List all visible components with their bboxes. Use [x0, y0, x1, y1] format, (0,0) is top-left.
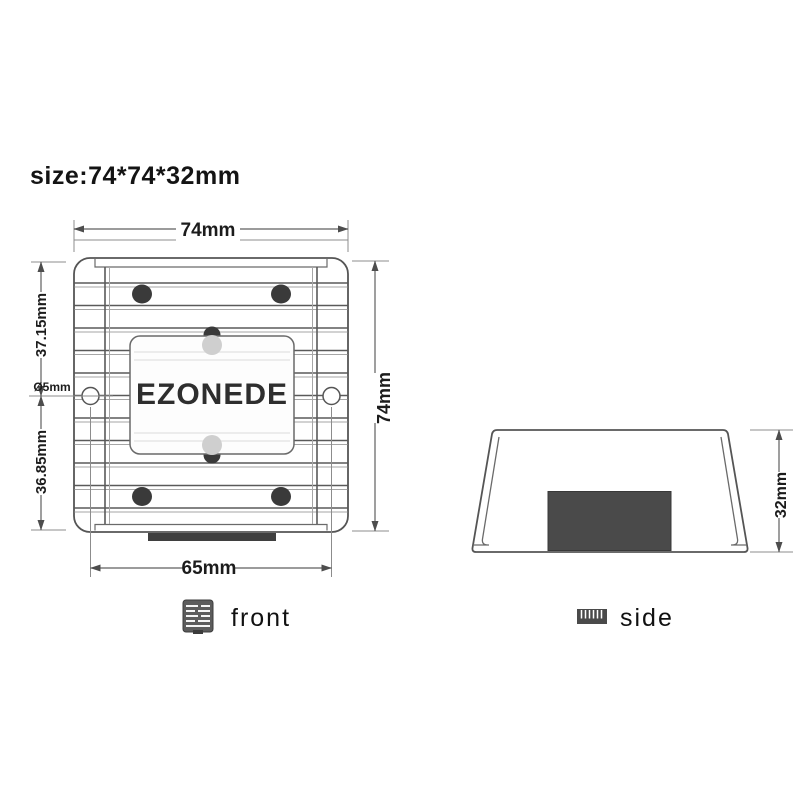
dimension-width-top: 74mm	[74, 220, 348, 252]
mounting-hole-right	[323, 388, 340, 405]
screw-bottom-left-icon	[132, 487, 152, 506]
brand-label: EZONEDE	[136, 378, 288, 411]
page-title: size:74*74*32mm	[30, 162, 240, 190]
dim-label-side-height: 32mm	[773, 472, 790, 518]
brand-label-plate: EZONEDE	[130, 327, 294, 464]
side-view	[472, 430, 747, 552]
dim-label-lower-section: 36.85mm	[33, 430, 50, 494]
label-tab-top-light	[202, 335, 222, 355]
front-caption-label: front	[231, 604, 291, 632]
side-view-thumbnail-icon	[577, 609, 607, 624]
label-tab-bottom-light	[202, 435, 222, 455]
dim-label-width: 74mm	[181, 220, 236, 241]
screw-top-right-icon	[271, 285, 291, 304]
dimension-height-right: 74mm	[352, 261, 394, 531]
side-caption-label: side	[620, 604, 674, 632]
dimension-side-height: 32mm	[750, 430, 793, 552]
screw-bottom-right-icon	[271, 487, 291, 506]
dim-label-hole-spacing: 65mm	[182, 558, 237, 579]
side-connector-block	[548, 492, 671, 551]
product-dimension-diagram: size:74*74*32mm EZONEDE	[0, 0, 800, 800]
dim-label-upper-section: 37.15mm	[33, 293, 50, 357]
screw-top-left-icon	[132, 285, 152, 304]
front-caption: front	[183, 600, 291, 634]
diagram-canvas: size:74*74*32mm EZONEDE	[0, 0, 800, 800]
dim-label-height: 74mm	[374, 372, 394, 424]
front-view: EZONEDE	[29, 258, 348, 541]
side-caption: side	[577, 604, 674, 632]
front-view-thumbnail-icon	[183, 600, 213, 634]
dim-label-hole-diameter: Ø5mm	[33, 380, 70, 394]
front-bottom-bar	[148, 533, 276, 541]
